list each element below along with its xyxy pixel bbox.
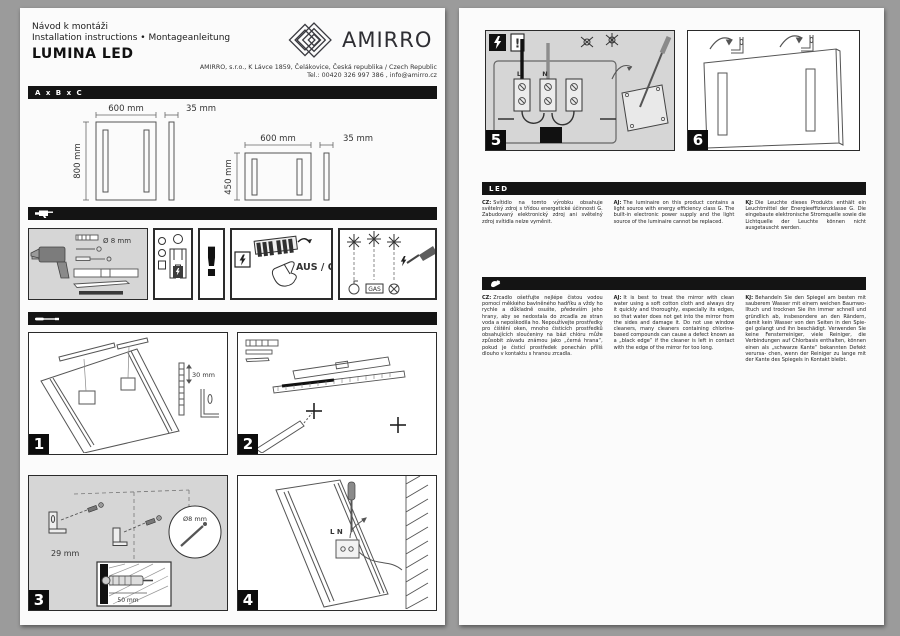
tools-section-bar xyxy=(28,207,437,220)
care-text-cz: CZ:Zrcadlo ošetřujte nejlépe čistou vodo… xyxy=(482,295,603,363)
step3-hole-diameter-label: Ø8 mm xyxy=(183,515,207,523)
address-line-2: Tel.: 00420 326 997 386 , info@amirro.cz xyxy=(200,72,437,80)
step1-offset-label: 30 mm xyxy=(192,371,215,379)
step3-screw-length-label: 50 mm xyxy=(117,597,138,604)
step6-number: 6 xyxy=(688,130,708,150)
step5-neutral-label: N xyxy=(542,70,547,78)
step1-diagram: 30 mm xyxy=(29,333,226,453)
exclamation-mark: ! xyxy=(200,230,223,296)
size-section-bar: A x B x C xyxy=(28,86,437,99)
care-text-de: KJ:Behandeln Sie den Spiegel am besten m… xyxy=(745,295,866,363)
step4-number: 4 xyxy=(238,590,258,610)
brand-logo-block: AMIRRO xyxy=(282,20,432,60)
header-title-block: Návod k montáži Installation instruction… xyxy=(32,22,230,62)
tools-illustration: Ø 8 mm xyxy=(29,229,146,298)
power-off-panel: AUS / OFF xyxy=(230,228,333,300)
step1-number: 1 xyxy=(29,434,49,454)
company-address: AMIRRO, s.r.o., K Lávce 1859, Čelákovice… xyxy=(200,64,437,79)
gas-label: GAS xyxy=(368,286,381,293)
led-text-columns: CZ:Svítidlo na tomto výrobku obsahuje sv… xyxy=(482,200,866,231)
mirror-800-dimension-diagram: 600 mm 35 mm 800 mm xyxy=(68,102,243,208)
care-section-bar xyxy=(482,277,866,290)
step5-warning-mark: ! xyxy=(515,37,520,51)
care-de-label: KJ: xyxy=(745,295,753,301)
warning-panel: ! xyxy=(198,228,225,300)
step1-panel: 30 mm 1 xyxy=(28,332,228,455)
aus-off-label: AUS / OFF xyxy=(296,262,331,273)
amirro-diamond-logo-icon xyxy=(282,20,334,60)
cleaning-hand-icon xyxy=(489,279,502,289)
step3-diagram: 29 mm 50 mm xyxy=(29,476,226,609)
step2-panel: 2 xyxy=(237,332,437,455)
mirror2-width-label: 600 mm xyxy=(260,134,296,144)
led-text-de: KJ:Die Leuchte dieses Produkts enthält e… xyxy=(745,200,866,231)
care-en-label: AJ: xyxy=(614,295,622,301)
drill-icon xyxy=(35,209,53,218)
led-text-en: AJ:The luminaire on this product contain… xyxy=(614,200,735,231)
mirror1-depth-label: 35 mm xyxy=(186,104,216,114)
step5-panel: ! xyxy=(485,30,675,151)
led-text-cz: CZ:Svítidlo na tomto výrobku obsahuje sv… xyxy=(482,200,603,231)
screwdriver-icon xyxy=(35,315,59,323)
led-cz-body: Svítidlo na tomto výrobku obsahuje světe… xyxy=(482,200,603,225)
care-text-en: AJ:It is best to treat the mirror with c… xyxy=(614,295,735,363)
document-viewer-canvas: Návod k montáži Installation instruction… xyxy=(0,0,900,636)
led-bar-label: LED xyxy=(489,185,509,193)
mirror2-depth-label: 35 mm xyxy=(343,134,373,144)
step5-live-label: L xyxy=(517,70,521,78)
step3-panel: 29 mm 50 mm xyxy=(28,475,228,611)
care-en-body: It is best to treat the mirror with clea… xyxy=(614,295,735,351)
led-de-label: KJ: xyxy=(745,200,753,206)
title-en-de: Installation instructions • Montageanlei… xyxy=(32,33,230,44)
led-en-body: The luminaire on this product contains a… xyxy=(614,200,735,225)
protective-workwear-panel xyxy=(153,228,193,300)
hidden-lines-warning-panel: GAS xyxy=(338,228,437,300)
step3-number: 3 xyxy=(29,590,49,610)
step5-wiring-diagram: ! xyxy=(486,31,672,149)
manual-page-1: Návod k montáži Installation instruction… xyxy=(20,8,445,625)
product-name: LUMINA LED xyxy=(32,46,230,62)
step4-panel: L N 4 xyxy=(237,475,437,611)
step6-diagram xyxy=(688,31,857,149)
care-cz-body: Zrcadlo ošetřujte nejlépe čistou vodou p… xyxy=(482,295,603,357)
step6-panel: 6 xyxy=(687,30,860,151)
brand-name: AMIRRO xyxy=(342,28,432,52)
led-section-bar: LED xyxy=(482,182,866,195)
step4-diagram: L N xyxy=(238,476,435,609)
care-text-columns: CZ:Zrcadlo ošetřujte nejlépe čistou vodo… xyxy=(482,295,866,363)
care-de-body: Behandeln Sie den Spiegel am besten mit … xyxy=(745,295,866,363)
mirror1-height-label: 800 mm xyxy=(73,143,83,179)
manual-page-2: ! xyxy=(459,8,884,625)
mirror2-height-label: 450 mm xyxy=(224,159,234,195)
address-line-1: AMIRRO, s.r.o., K Lávce 1859, Čelákovice… xyxy=(200,64,437,72)
step3-spacing-label: 29 mm xyxy=(51,549,80,558)
title-cz: Návod k montáži xyxy=(32,22,230,33)
mirror-450-dimension-diagram: 600 mm 35 mm 450 mm xyxy=(220,130,395,210)
size-bar-label: A x B x C xyxy=(35,89,83,97)
mounting-section-bar xyxy=(28,312,437,325)
step2-number: 2 xyxy=(238,434,258,454)
tools-needed-panel: Ø 8 mm xyxy=(28,228,148,300)
mirror1-width-label: 600 mm xyxy=(108,104,144,114)
hidden-pipes-illustration: GAS xyxy=(340,230,435,298)
drill-bit-size-label: Ø 8 mm xyxy=(103,237,131,245)
led-en-label: AJ: xyxy=(614,200,622,206)
worker-apron-icon xyxy=(155,230,191,298)
step2-diagram xyxy=(238,333,435,453)
led-de-body: Die Leuchte dieses Produkts enthält ein … xyxy=(745,200,866,231)
step4-terminal-label: L N xyxy=(330,528,343,536)
step5-number: 5 xyxy=(486,130,506,150)
breaker-switch-illustration: AUS / OFF xyxy=(232,230,331,298)
